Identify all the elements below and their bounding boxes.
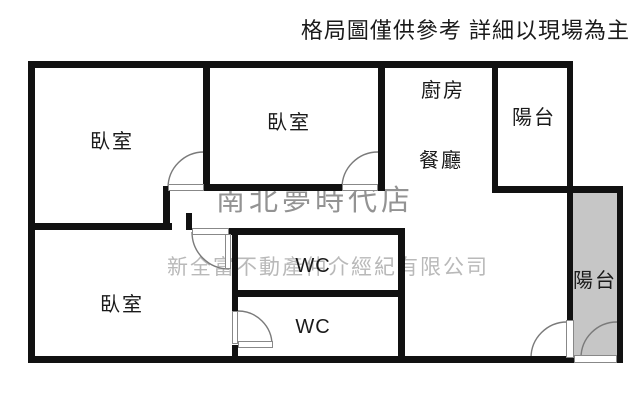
room-label-bedroom-top-left: 臥室 — [90, 132, 134, 152]
door-leaf-bedroom-bottom-left-closed — [192, 228, 229, 235]
room-label-kitchen: 廚房 — [421, 81, 465, 101]
room-label-balcony-right: 陽台 — [573, 271, 617, 291]
wall-balcony-top-right-bottom — [492, 186, 623, 193]
room-label-wc-lower: WC — [295, 317, 330, 337]
wall-living-right — [567, 193, 573, 322]
door-arc-living-to-balcony — [531, 322, 567, 358]
wall-hallway-left — [163, 186, 170, 230]
door-arc-bedroom-top-middle — [342, 152, 378, 188]
floor-plan: 格局圖僅供參考 詳細以現場為主 南北夢時代店 新全富不動產仲介經紀有限公司 臥室… — [0, 0, 640, 411]
door-leaf-living-to-balcony — [566, 320, 574, 358]
wall-outer-bottom — [28, 356, 623, 363]
wall-wc-left-upper — [232, 228, 238, 311]
door-arc-wc-lower — [238, 311, 272, 345]
disclaimer-text: 格局圖僅供參考 詳細以現場為主 — [301, 20, 630, 42]
door-leaf-wc-lower-closed — [232, 311, 238, 344]
door-arc-balcony-right — [581, 322, 617, 358]
wall-balcony-top-right-left — [492, 61, 498, 192]
room-label-wc-upper: WC — [295, 256, 330, 276]
balcony-threshold — [574, 355, 617, 363]
wall-outer-left — [28, 61, 35, 363]
door-arc-bedroom-bottom-left — [192, 232, 229, 269]
room-label-bedroom-bottom-left: 臥室 — [100, 295, 144, 315]
door-arc-bedroom-top-left — [168, 152, 204, 188]
door-leaf-bedroom-bottom-left-open — [225, 234, 231, 269]
door-leaf-bedroom-top-middle — [342, 184, 378, 191]
wall-wc-divider — [232, 290, 405, 297]
room-label-dining: 餐廳 — [419, 151, 463, 171]
room-label-balcony-top-right: 陽台 — [512, 108, 556, 128]
wall-outer-right-upper — [567, 61, 573, 193]
wall-wc-right — [398, 228, 405, 363]
wall-bedroom-top-left-right — [203, 61, 210, 188]
room-label-bedroom-top-middle: 臥室 — [267, 113, 311, 133]
wall-bedroom-middle-right — [378, 61, 385, 191]
wall-outer-right-lower — [617, 186, 623, 363]
wall-wc-top — [229, 228, 405, 235]
door-leaf-bedroom-top-left — [168, 184, 204, 191]
door-leaf-wc-lower-open — [238, 341, 273, 348]
wall-bedrooms-left-divider — [28, 223, 172, 230]
wall-bedroom-middle-bottom — [204, 184, 342, 191]
